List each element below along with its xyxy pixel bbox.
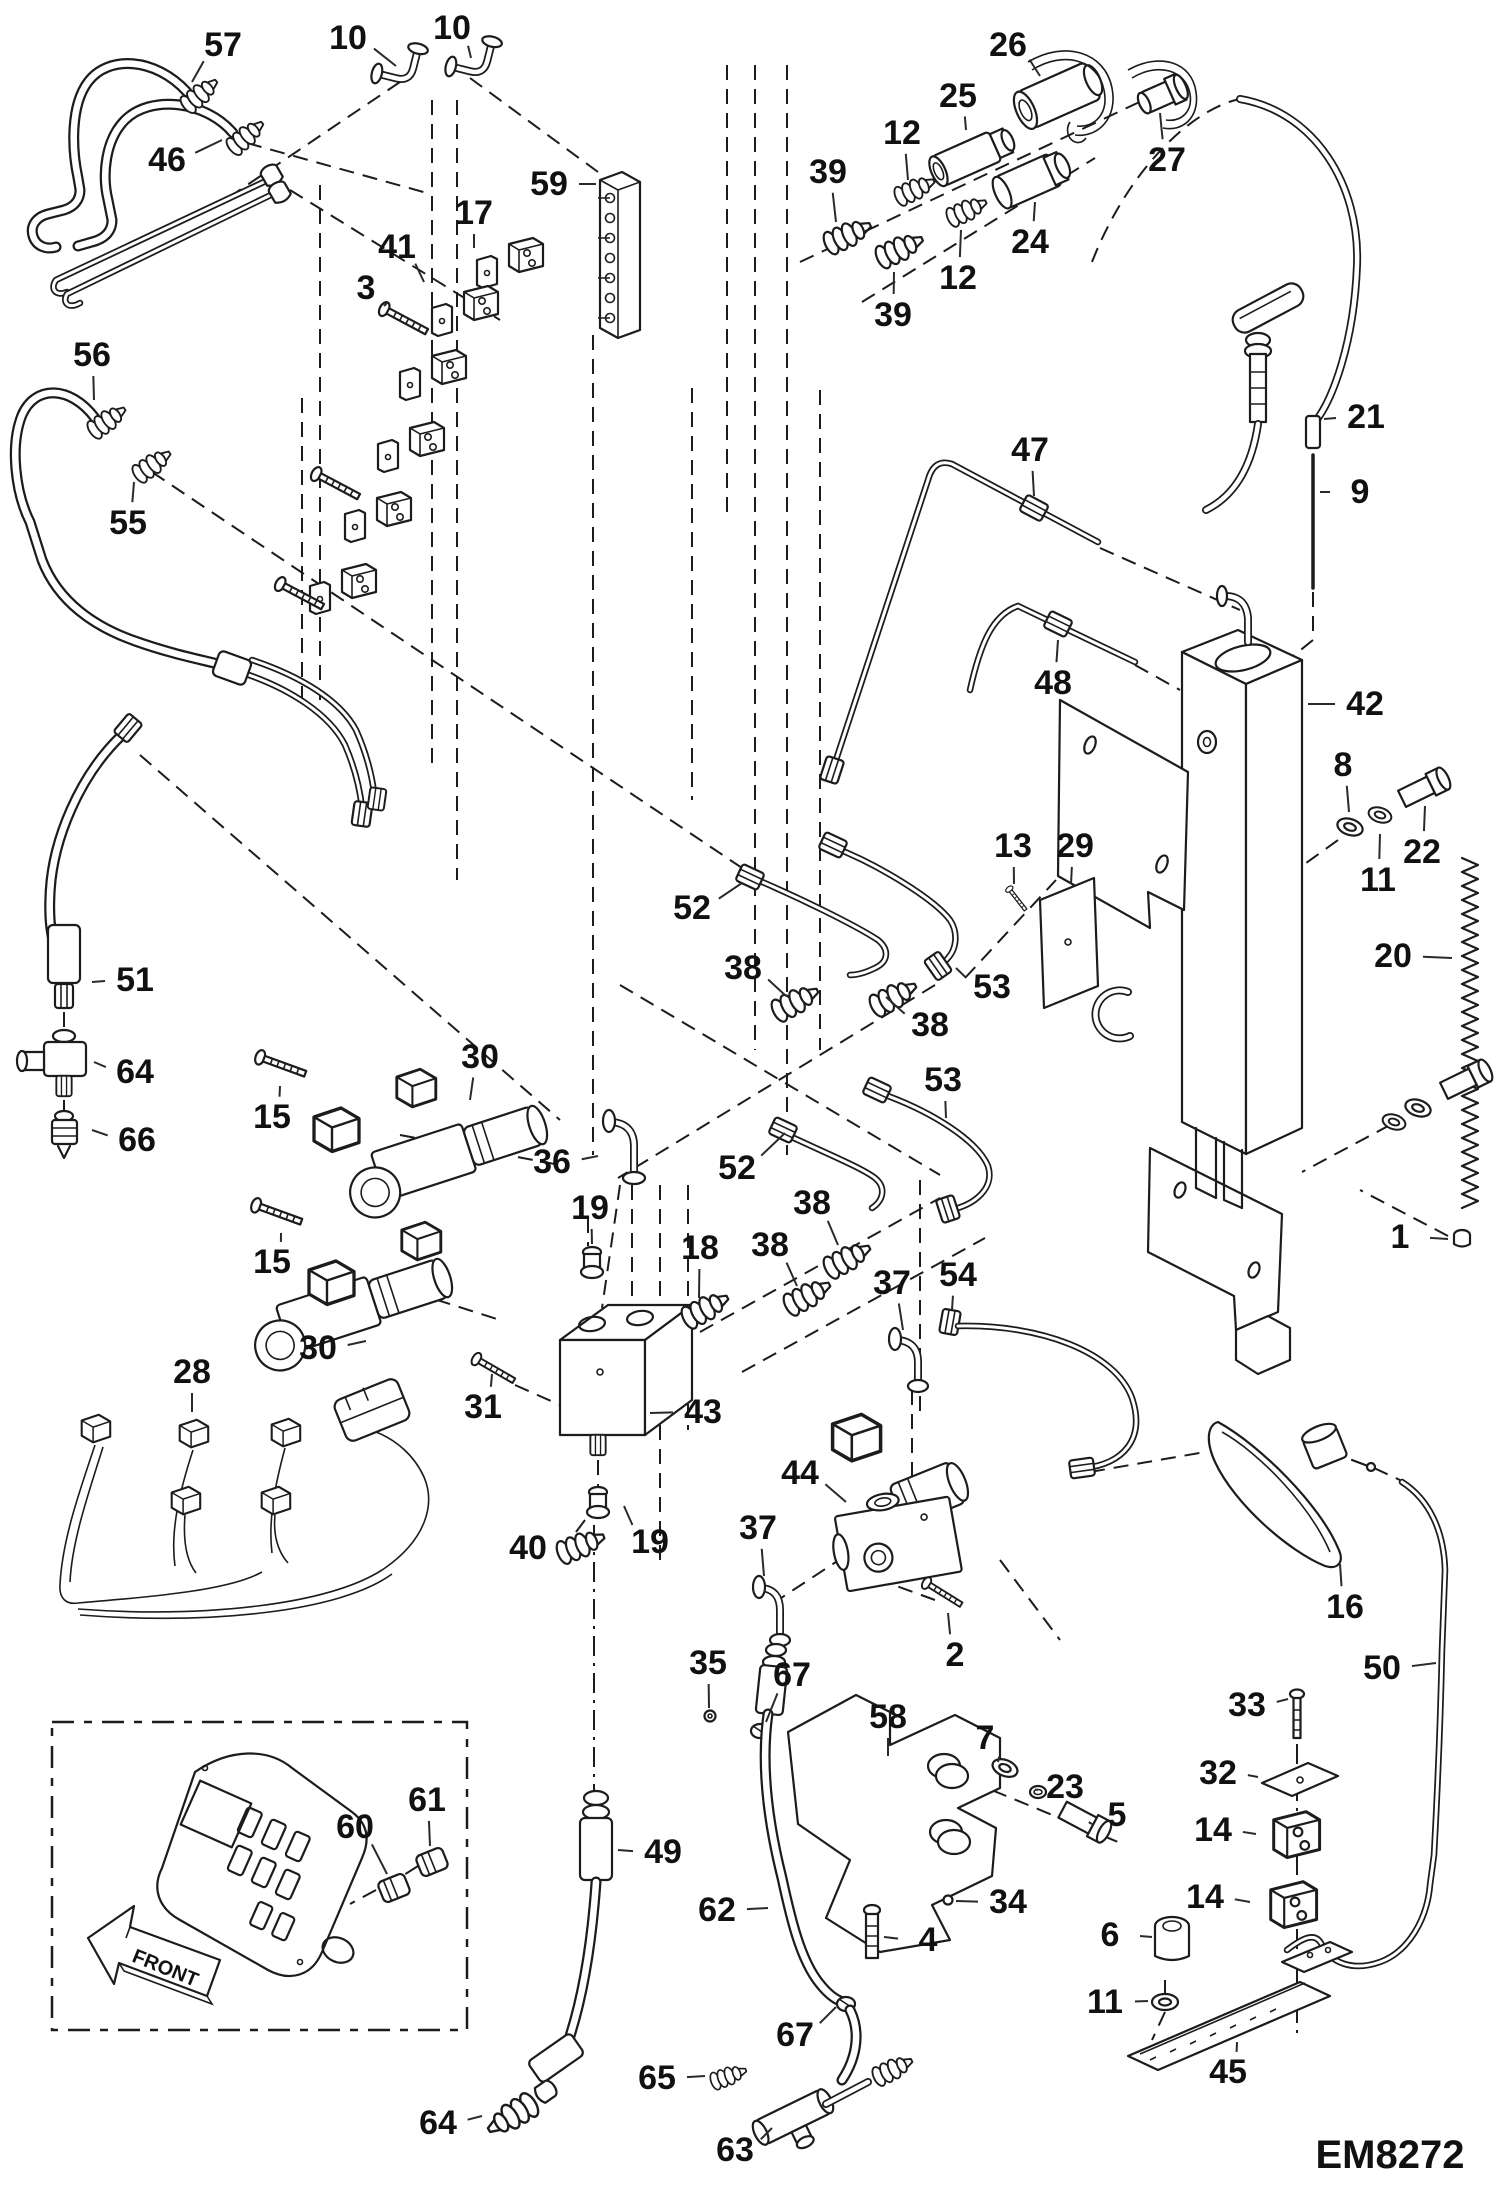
callout-8: 8 xyxy=(1334,746,1353,784)
inset-front-view: FRONT xyxy=(52,1722,467,2030)
callout-36: 36 xyxy=(533,1143,571,1181)
callout-leader-54 xyxy=(952,1296,953,1310)
callout-5: 5 xyxy=(1108,1796,1127,1834)
callout-leader-20 xyxy=(1423,957,1452,958)
callout-leader-27 xyxy=(1160,113,1163,139)
callout-leader-65 xyxy=(687,2076,705,2077)
callout-50: 50 xyxy=(1363,1649,1401,1687)
callout-leader-49 xyxy=(618,1850,633,1851)
callout-26: 26 xyxy=(989,26,1027,64)
callout-leader-62 xyxy=(747,1908,768,1909)
part-coupler-chain xyxy=(821,51,1197,271)
callout-15: 15 xyxy=(253,1243,291,1281)
callout-52: 52 xyxy=(718,1149,756,1187)
callout-38: 38 xyxy=(751,1226,789,1264)
callout-47: 47 xyxy=(1011,431,1049,469)
callout-46: 46 xyxy=(148,141,186,179)
callout-51: 51 xyxy=(116,961,154,999)
callout-60: 60 xyxy=(336,1808,374,1846)
callout-leader-61 xyxy=(429,1821,430,1846)
callout-67: 67 xyxy=(773,1656,811,1694)
callout-23: 23 xyxy=(1046,1768,1084,1806)
callout-leader-51 xyxy=(92,981,105,982)
callout-14: 14 xyxy=(1186,1878,1224,1916)
callout-leader-25 xyxy=(965,116,966,130)
callout-55: 55 xyxy=(109,504,147,542)
callout-leader-53 xyxy=(956,968,965,977)
callout-leader-55 xyxy=(132,482,134,502)
callout-44: 44 xyxy=(781,1454,819,1492)
callout-leader-60 xyxy=(372,1844,387,1874)
callout-64: 64 xyxy=(419,2104,457,2142)
callout-leader-12 xyxy=(906,154,908,180)
callout-leader-47 xyxy=(1033,471,1034,496)
callout-13: 13 xyxy=(994,827,1032,865)
parts-diagram-page: FRONT 5710104626251239272412395917413565… xyxy=(0,0,1498,2194)
callout-leader-31 xyxy=(491,1374,492,1387)
callout-63: 63 xyxy=(716,2131,754,2169)
callout-leader-64 xyxy=(468,2116,482,2120)
callout-3: 3 xyxy=(357,269,376,307)
callout-45: 45 xyxy=(1209,2053,1247,2091)
callout-18: 18 xyxy=(681,1229,719,1267)
callout-32: 32 xyxy=(1199,1754,1237,1792)
callout-1: 1 xyxy=(1391,1218,1410,1256)
callout-leader-26 xyxy=(1030,60,1040,76)
part-28-wire-harness xyxy=(60,1375,429,1618)
callout-16: 16 xyxy=(1326,1588,1364,1626)
part-49-hose xyxy=(482,1791,612,2141)
callout-12: 12 xyxy=(883,114,921,152)
callout-leader-57 xyxy=(192,61,204,82)
callout-leader-37 xyxy=(762,1549,764,1576)
callout-22: 22 xyxy=(1403,833,1441,871)
callout-leader-10 xyxy=(468,46,471,58)
callout-leader-33 xyxy=(1277,1699,1288,1702)
callout-leader-2 xyxy=(948,1613,950,1634)
callout-leader-22 xyxy=(1424,806,1425,831)
callout-54: 54 xyxy=(939,1256,977,1294)
callout-61: 61 xyxy=(408,1781,446,1819)
callout-11: 11 xyxy=(1087,1983,1123,2021)
callout-leader-30 xyxy=(470,1077,473,1100)
callout-38: 38 xyxy=(911,1006,949,1044)
callout-19: 19 xyxy=(571,1189,609,1227)
callout-42: 42 xyxy=(1346,685,1384,723)
callout-leader-46 xyxy=(195,140,222,153)
callout-leader-53 xyxy=(945,1101,946,1118)
part-42-bracket-tower xyxy=(1005,586,1496,1374)
callout-leader-48 xyxy=(1056,640,1058,662)
callout-leader-34 xyxy=(956,1901,978,1902)
callout-57: 57 xyxy=(204,26,242,64)
callout-38: 38 xyxy=(724,949,762,987)
callout-30: 30 xyxy=(299,1329,337,1367)
callout-leader-52 xyxy=(719,883,742,899)
callout-21: 21 xyxy=(1347,398,1385,436)
callout-62: 62 xyxy=(698,1891,736,1929)
callout-49: 49 xyxy=(644,1833,682,1871)
callout-leader-50 xyxy=(1412,1663,1436,1666)
callout-52: 52 xyxy=(673,889,711,927)
callout-30: 30 xyxy=(461,1038,499,1076)
callout-leader-15 xyxy=(279,1086,280,1097)
callout-38: 38 xyxy=(793,1184,831,1222)
part-57-46-hose-assembly xyxy=(32,64,292,306)
callout-41: 41 xyxy=(378,228,416,266)
callout-leader-24 xyxy=(1034,202,1035,221)
callout-leader-12 xyxy=(960,230,961,257)
callout-24: 24 xyxy=(1011,223,1049,261)
callout-leader-32 xyxy=(1248,1775,1258,1777)
part-43-manifold-group xyxy=(470,1110,733,1566)
callout-25: 25 xyxy=(939,77,977,115)
part-59-mounting-bar xyxy=(598,172,640,338)
exploded-parts-diagram: FRONT 5710104626251239272412395917413565… xyxy=(0,0,1498,2194)
callout-2: 2 xyxy=(946,1636,965,1674)
callout-20: 20 xyxy=(1374,937,1412,975)
part-17-41-3-clamp-stack xyxy=(273,238,543,614)
callout-leader-36 xyxy=(582,1156,598,1159)
callout-4: 4 xyxy=(919,1921,938,1959)
callout-31: 31 xyxy=(464,1388,502,1426)
callout-56: 56 xyxy=(73,336,111,374)
callout-10: 10 xyxy=(433,9,471,47)
callout-10: 10 xyxy=(329,19,367,57)
callout-leader-37 xyxy=(899,1303,903,1330)
callout-40: 40 xyxy=(509,1529,547,1567)
callout-leader-11 xyxy=(1135,2001,1148,2002)
callout-37: 37 xyxy=(873,1264,911,1302)
callout-leader-43 xyxy=(650,1412,673,1413)
callout-28: 28 xyxy=(173,1353,211,1391)
callout-39: 39 xyxy=(874,296,912,334)
callout-43: 43 xyxy=(684,1393,722,1431)
callout-37: 37 xyxy=(739,1509,777,1547)
callout-leader-40 xyxy=(556,1546,558,1547)
callout-leader-29 xyxy=(1071,867,1072,884)
callout-leader-16 xyxy=(1340,1564,1342,1586)
callout-12: 12 xyxy=(939,259,977,297)
callout-leader-64 xyxy=(94,1062,106,1067)
part-51-hose-64-tee-66 xyxy=(17,713,143,1158)
callout-35: 35 xyxy=(689,1644,727,1682)
callout-leader-38 xyxy=(768,979,786,996)
part-21-cable-9-rod xyxy=(1206,99,1357,588)
part-30-solenoid-valves xyxy=(244,1049,557,1377)
callout-14: 14 xyxy=(1194,1811,1232,1849)
callout-48: 48 xyxy=(1034,664,1072,702)
callout-leader-14 xyxy=(1243,1832,1256,1834)
callout-66: 66 xyxy=(118,1121,156,1159)
callout-39: 39 xyxy=(809,153,847,191)
callout-58: 58 xyxy=(869,1698,907,1736)
callout-leader-30 xyxy=(348,1341,366,1345)
callout-64: 64 xyxy=(116,1053,154,1091)
plate-code: EM8272 xyxy=(1316,2133,1465,2177)
callout-leader-23 xyxy=(1035,1789,1038,1790)
callout-11: 11 xyxy=(1360,861,1396,899)
callout-27: 27 xyxy=(1148,141,1186,179)
callout-34: 34 xyxy=(989,1883,1027,1921)
callout-67: 67 xyxy=(776,2016,814,2054)
callout-leader-66 xyxy=(92,1130,108,1135)
callout-59: 59 xyxy=(530,165,568,203)
callout-19: 19 xyxy=(631,1523,669,1561)
callout-leader-56 xyxy=(93,376,94,400)
callout-53: 53 xyxy=(973,968,1011,1006)
callout-9: 9 xyxy=(1351,473,1370,511)
callout-leader-39 xyxy=(833,193,836,222)
callout-33: 33 xyxy=(1228,1686,1266,1724)
part-45-clamp-stack xyxy=(1128,1690,1352,2071)
callout-7: 7 xyxy=(976,1719,995,1757)
callout-leader-38 xyxy=(828,1221,838,1245)
callout-leader-21 xyxy=(1324,418,1336,419)
callout-leader-7 xyxy=(998,1756,999,1762)
callout-leader-67 xyxy=(820,2007,836,2023)
callout-29: 29 xyxy=(1056,827,1094,865)
callout-65: 65 xyxy=(638,2059,676,2097)
callout-53: 53 xyxy=(924,1061,962,1099)
callout-leader-44 xyxy=(825,1484,846,1502)
callout-leader-8 xyxy=(1347,786,1349,812)
callout-leader-14 xyxy=(1235,1899,1250,1902)
callout-leader-6 xyxy=(1140,1936,1152,1937)
callout-6: 6 xyxy=(1101,1916,1120,1954)
callout-leader-11 xyxy=(1379,834,1380,859)
part-58-bracket-group xyxy=(788,1695,1114,1958)
callout-leader-1 xyxy=(1430,1238,1448,1239)
callout-15: 15 xyxy=(253,1098,291,1136)
callout-17: 17 xyxy=(455,194,493,232)
